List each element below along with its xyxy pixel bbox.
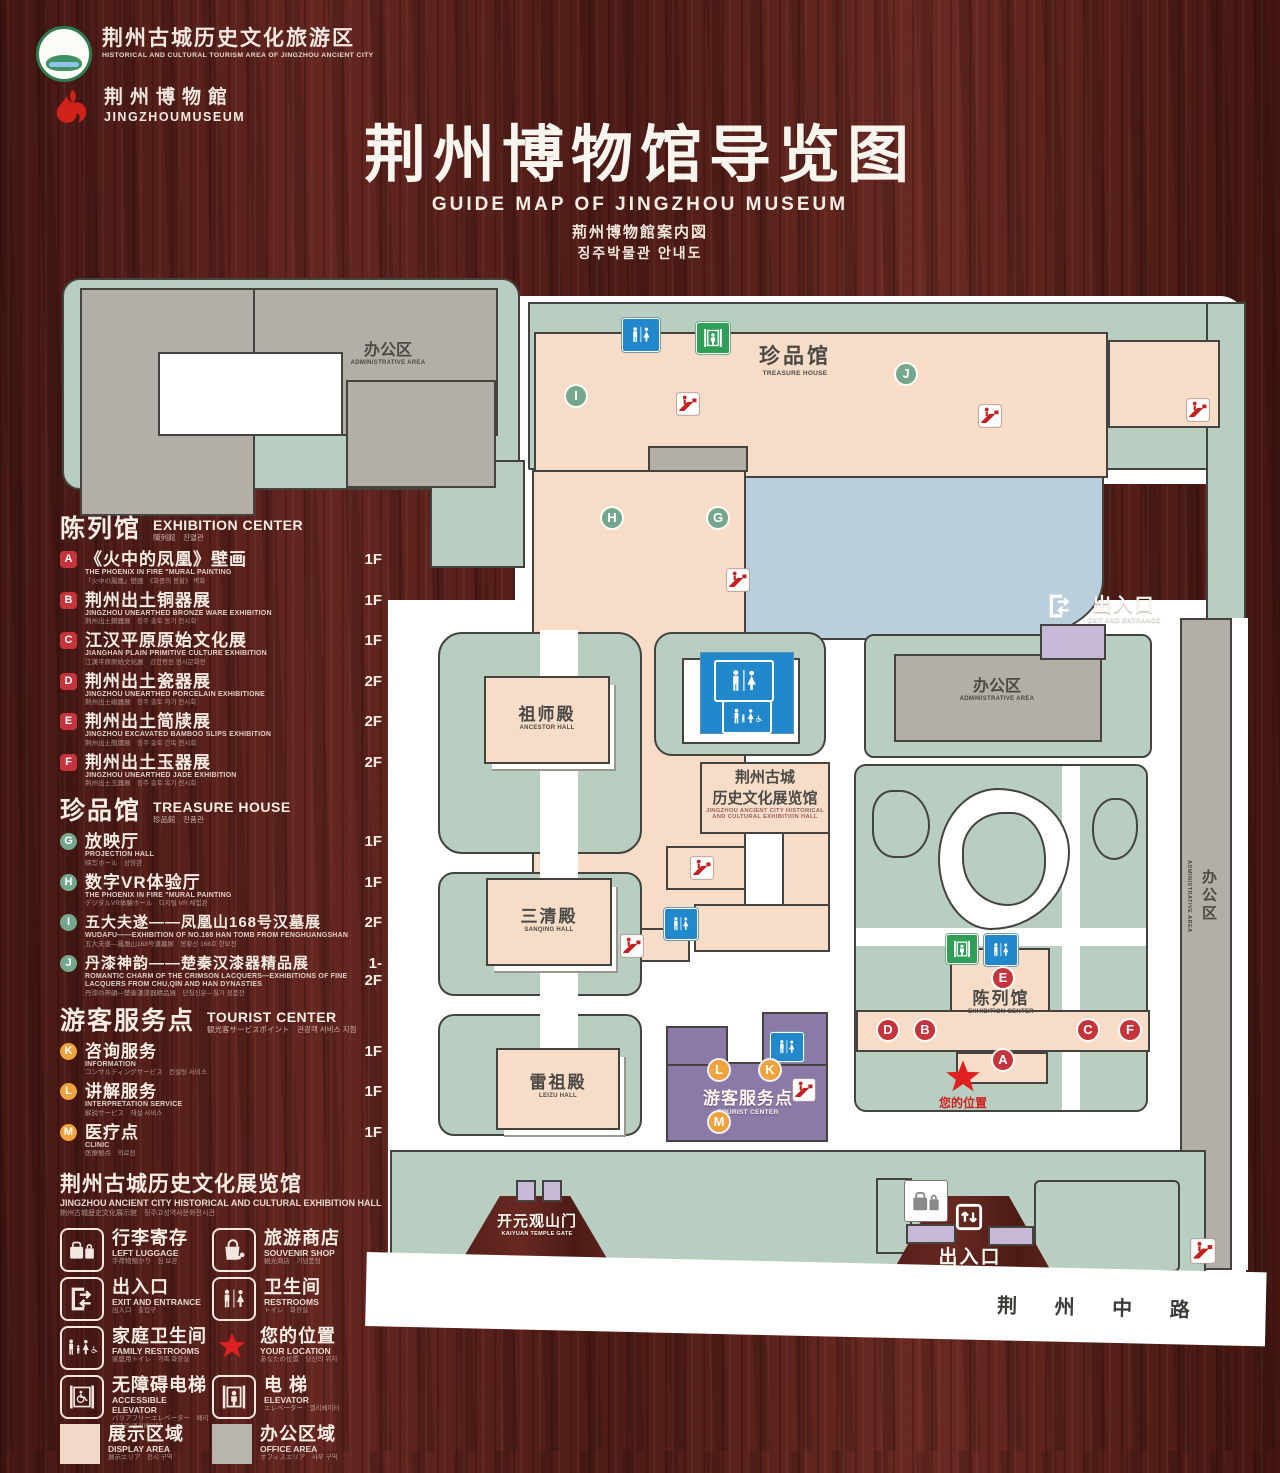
marker-badge: G: [60, 833, 77, 850]
map-marker-i: I: [566, 386, 586, 406]
map-marker-f: F: [1120, 1020, 1140, 1040]
exhibition-center-bar: [856, 1010, 1150, 1052]
map-marker-j: J: [896, 364, 916, 384]
map-marker-g: G: [708, 508, 728, 528]
marker-badge: M: [60, 1124, 77, 1141]
legend-item-b: B 荆州出土铜器展JINGZHOU UNEARTHED BRONZE WARE …: [60, 591, 382, 627]
jz-hall-bottom-bar: [694, 904, 830, 952]
kaiyuan-gate-label: 开元观山门 KAIYUAN TEMPLE GATE: [497, 1210, 577, 1237]
escalator-icon: [676, 392, 700, 416]
marker-badge: D: [60, 673, 77, 690]
elevator-icon: [946, 934, 978, 964]
map-marker-a: A: [993, 1050, 1013, 1070]
leizu-hall-label: 雷祖殿 LEIZU HALL: [530, 1068, 587, 1099]
legend-left-luggage: 行李寄存LEFT LUGGAGE手荷物預かり 짐 보관: [60, 1228, 212, 1277]
restroom-icon: [984, 934, 1018, 966]
marker-badge: I: [60, 914, 77, 931]
legend-item-m: M 医疗点CLINIC医療拠点 의료점 1F: [60, 1123, 382, 1159]
escalator-icon: [690, 856, 714, 880]
legend-item-c: C 江汉平原原始文化展JIANGHAN PLAIN PRIMITIVE CULT…: [60, 631, 382, 667]
facility-icon-legend: 行李寄存LEFT LUGGAGE手荷物預かり 짐 보관 旅游商店SOUVENIR…: [60, 1228, 382, 1473]
admin-top-courtyard: [158, 352, 343, 436]
legend-panel: 陈列馆 EXHIBITION CENTER 陳列館 진열관 A 《火中的凤凰》壁…: [60, 506, 382, 1473]
elevator-icon: [212, 1375, 256, 1419]
left-luggage-icon: [60, 1228, 104, 1272]
restroom-icon: [622, 318, 660, 352]
exit-top-label: 出入口 EXIT AND ENTRANCE: [1087, 590, 1160, 624]
legend-item-i: I 五大夫遂——凤凰山168号汉墓展WUDAFU——EXHIBITION OF …: [60, 913, 382, 949]
jz-hall-note-sub: 荆州古城歴史文化展示館 징주고성역사문화전시관: [60, 1209, 382, 1218]
marker-badge: B: [60, 592, 77, 609]
legend-item-l: L 讲解服务INTERPRETATION SERVICE解説サービス 해설 서비…: [60, 1082, 382, 1118]
left-luggage-icon: [904, 1180, 948, 1222]
marker-badge: F: [60, 754, 77, 771]
legend-item-f: F 荆州出土玉器展JINGZHOU UNEARTHED JADE EXHIBIT…: [60, 753, 382, 789]
legend-item-j: J 丹漆神韵——楚秦汉漆器精品展ROMANTIC CHARM OF THE CR…: [60, 954, 382, 998]
section-title: 陈列馆: [60, 516, 141, 542]
sanqing-hall-label: 三清殿 SANQING HALL: [521, 902, 578, 933]
legend-item-k: K 咨询服务INFORMATIONコンサルティングサービス 컨설팅 서비스 1F: [60, 1042, 382, 1078]
legend-your-location: 您的位置YOUR LOCATIONあなたの位置 당신의 위치: [212, 1326, 382, 1375]
display-area-swatch: [60, 1424, 100, 1464]
restroom-icon: [212, 1277, 256, 1321]
legend-section-exhibition-header: 陈列馆 EXHIBITION CENTER 陳列館 진열관: [60, 516, 382, 542]
office-area-swatch: [212, 1424, 252, 1464]
jingzhou-museum-guide-map-poster: { "header": { "logo1_cn": "荆州古城历史文化旅游区",…: [0, 0, 1280, 1451]
legend-section-treasure-header: 珍品馆 TREASURE HOUSE 珍品館 진품관: [60, 798, 382, 824]
exhibition-center-label: 陈列馆 EXHIBITION CENTER: [968, 984, 1034, 1015]
south-gate-left: [906, 1224, 956, 1244]
accessible-elevator-icon: [60, 1375, 104, 1419]
map-marker-d: D: [878, 1020, 898, 1040]
legend-restrooms: 卫生间RESTROOMSトイレ 화장실: [212, 1277, 382, 1326]
marker-badge: A: [60, 551, 77, 568]
legend-family-restrooms: 家庭卫生间FAMILY RESTROOMS家庭用トイレ 가족 화장실: [60, 1326, 212, 1375]
jz-hall-label: 荆州古城 历史文化展览馆 JINGZHOU ANCIENT CITY HISTO…: [706, 766, 824, 820]
escalator-icon: [792, 1078, 816, 1102]
escalator-icon: [620, 934, 644, 958]
legend-souvenir-shop: 旅游商店SOUVENIR SHOP観光商店 기념품점: [212, 1228, 382, 1277]
admin-top-building-arm: [346, 380, 496, 488]
map-marker-b: B: [915, 1020, 935, 1040]
map-marker-e: E: [993, 968, 1013, 988]
family-restroom-icon: [722, 700, 772, 734]
south-exit-green-right: [1034, 1180, 1180, 1272]
exit-entrance-icon: [60, 1277, 104, 1321]
right-path-strip: [1232, 618, 1248, 1270]
marker-badge: K: [60, 1043, 77, 1060]
legend-accessible-elevator: 无障碍电梯ACCESSIBLE ELEVATORバリアフリーエレベーター 배리어…: [60, 1375, 212, 1424]
admin-top-label: 办公区 ADMINISTRATIVE AREA: [351, 336, 426, 366]
ancestor-hall-label: 祖师殿 ANCESTOR HALL: [519, 700, 576, 731]
elevator-icon: [696, 322, 730, 354]
legend-item-d: D 荆州出土瓷器展JINGZHOU UNEARTHED PORCELAIN EX…: [60, 672, 382, 708]
escalator-icon: [726, 568, 750, 592]
your-location-label: 您的位置: [939, 1094, 987, 1111]
treasure-house-label: 珍品馆 TREASURE HOUSE: [759, 340, 831, 377]
kaiyuan-gate-left: [516, 1180, 536, 1202]
your-location-star-icon: [212, 1326, 252, 1366]
your-location-star-icon: [944, 1058, 982, 1096]
restroom-icon: [714, 660, 774, 702]
legend-item-h: H 数字VR体验厅THE PHOENIX IN FIRE "MURAL PAIN…: [60, 873, 382, 909]
escalator-icon: [1186, 398, 1210, 422]
marker-badge: E: [60, 713, 77, 730]
marker-badge: J: [60, 955, 77, 972]
marker-badge: L: [60, 1083, 77, 1100]
legend-item-a: A 《火中的凤凰》壁画THE PHOENIX IN FIRE "MURAL PA…: [60, 550, 382, 586]
marker-badge: H: [60, 874, 77, 891]
garden-island: [962, 812, 1046, 906]
treasure-house-inset: [648, 446, 748, 472]
legend-office-area: 办公区域OFFICE AREAオフィスエリア 사무 구역: [212, 1424, 382, 1473]
map-marker-k: K: [760, 1060, 780, 1080]
legend-item-g: G 放映厅PROJECTION HALL映写ホール 상영관 1F: [60, 832, 382, 868]
marker-badge: C: [60, 632, 77, 649]
elevator-updown-icon: [954, 1202, 984, 1232]
exit-top-icon: [1046, 592, 1074, 620]
admin-mid-label: 办公区 ADMINISTRATIVE AREA: [960, 672, 1035, 702]
map-marker-h: H: [602, 508, 622, 528]
admin-right-label: 办公区 ADMINISTRATIVE AREA: [1193, 860, 1219, 933]
kaiyuan-gate-right: [542, 1180, 562, 1202]
entrance-gate-top: [1040, 624, 1106, 660]
family-restroom-icon: [60, 1326, 104, 1370]
legend-section-tourist-header: 游客服务点 TOURIST CENTER 観光客サービスポイント 관광객 서비스…: [60, 1008, 382, 1034]
legend-exit-entrance: 出入口EXIT AND ENTRANCE出入口 출입구: [60, 1277, 212, 1326]
map-marker-c: C: [1078, 1020, 1098, 1040]
restroom-icon: [770, 1032, 804, 1062]
jz-hall-note-title: 荆州古城历史文化展览馆: [60, 1172, 382, 1198]
garden-lawn-left: [872, 790, 930, 858]
map-marker-l: L: [709, 1060, 729, 1080]
souvenir-shop-icon: [212, 1228, 256, 1272]
legend-display-area: 展示区域DISPLAY AREA展示エリア 전시 구역: [60, 1424, 212, 1473]
escalator-icon: [978, 404, 1002, 428]
map-marker-m: M: [709, 1112, 729, 1132]
legend-item-e: E 荆州出土简牍展JINGZHOU EXCAVATED BAMBOO SLIPS…: [60, 712, 382, 748]
legend-elevator: 电 梯ELEVATORエレベーター 엘리베이터: [212, 1375, 382, 1424]
restroom-icon: [664, 908, 698, 940]
road-label: 荆 州 中 路: [997, 1289, 1266, 1324]
escalator-icon: [1190, 1238, 1216, 1264]
jz-hall-note-en: JINGZHOU ANCIENT CITY HISTORICAL AND CUL…: [60, 1198, 382, 1209]
